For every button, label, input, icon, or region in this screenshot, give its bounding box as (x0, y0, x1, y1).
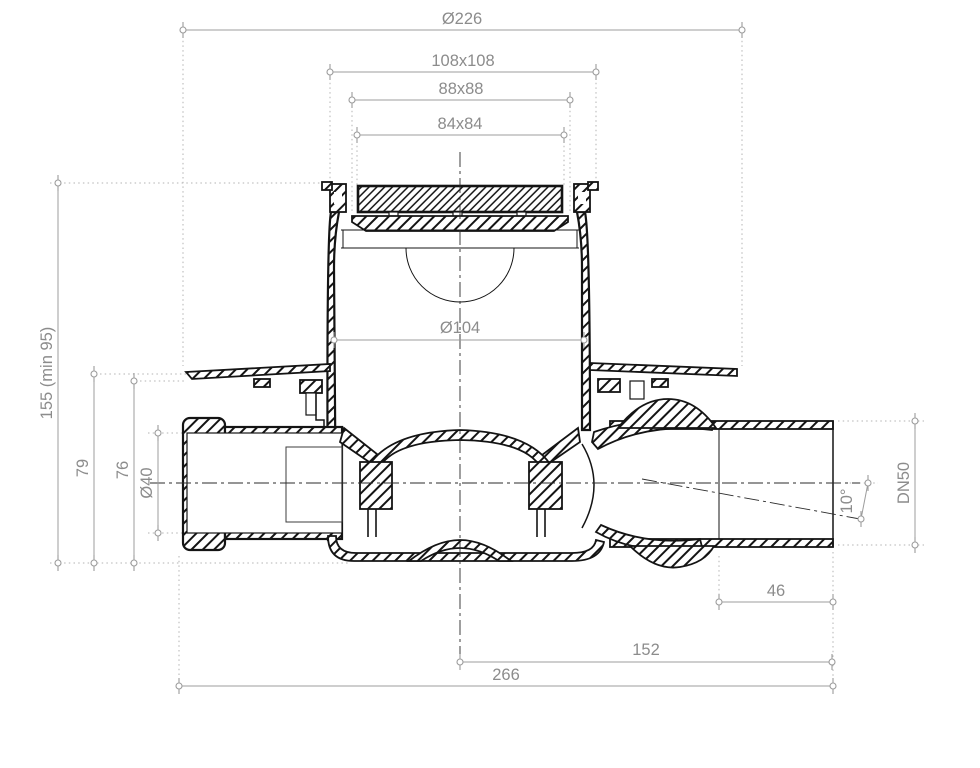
dim-label-total-height: 155 (min 95) (38, 327, 56, 420)
dim-outlet-nominal-size: DN50 (895, 413, 918, 553)
outlet-socket-dome-bottom (630, 546, 714, 568)
outlet-socket-dome-top (618, 399, 716, 428)
dim-total-height: 155 (min 95) (38, 175, 61, 571)
drain-cross-section (183, 182, 833, 568)
seal-block-right (529, 462, 562, 509)
seal-block-left (360, 462, 392, 509)
dim-label-flange-diameter: Ø226 (442, 10, 482, 28)
dim-label-flange-top-height: 79 (74, 459, 92, 477)
dim-label-total-length: 266 (492, 666, 520, 684)
dim-outlet-socket-length: 46 (716, 582, 836, 610)
dim-label-grate-seat-size: 88x88 (439, 80, 484, 98)
dim-inlet-diameter: Ø40 (138, 425, 161, 541)
inlet-pipe (183, 418, 342, 550)
dim-frame-outer-size: 108x108 (327, 52, 599, 80)
outlet-slope-line (642, 479, 860, 519)
drawing-sheet: Ø226 108x108 88x88 84x84 Ø104 155 (min (0, 0, 980, 768)
dim-grate-size: 84x84 (354, 115, 567, 143)
dim-label-centre-to-outlet-end: 152 (632, 641, 660, 659)
dim-label-grate-size: 84x84 (438, 115, 483, 133)
dim-label-flange-underside-height: 76 (114, 461, 132, 479)
dim-label-body-inner-diameter: Ø104 (440, 319, 480, 337)
dim-flange-diameter: Ø226 (180, 10, 745, 38)
dim-body-inner-diameter: Ø104 (331, 319, 587, 348)
body-wall-right (577, 212, 590, 430)
dim-grate-seat-size: 88x88 (349, 80, 573, 108)
flange-wing-right (590, 363, 737, 399)
dim-label-outlet-socket-length: 46 (767, 582, 785, 600)
dim-total-length: 266 (176, 666, 836, 694)
extension-lines (50, 36, 924, 692)
dim-label-inlet-diameter: Ø40 (138, 467, 156, 498)
dim-flange-top-height: 79 (74, 366, 97, 571)
technical-drawing-canvas: Ø226 108x108 88x88 84x84 Ø104 155 (min (0, 0, 980, 768)
bottom-bowl (328, 536, 604, 561)
dim-label-outlet-nominal-size: DN50 (895, 462, 913, 504)
dimension-annotations: Ø226 108x108 88x88 84x84 Ø104 155 (min (38, 10, 918, 694)
dim-flange-underside-height: 76 (114, 373, 137, 571)
dim-label-outlet-slope-angle: 10° (838, 489, 856, 514)
dim-label-frame-outer-size: 108x108 (431, 52, 494, 70)
